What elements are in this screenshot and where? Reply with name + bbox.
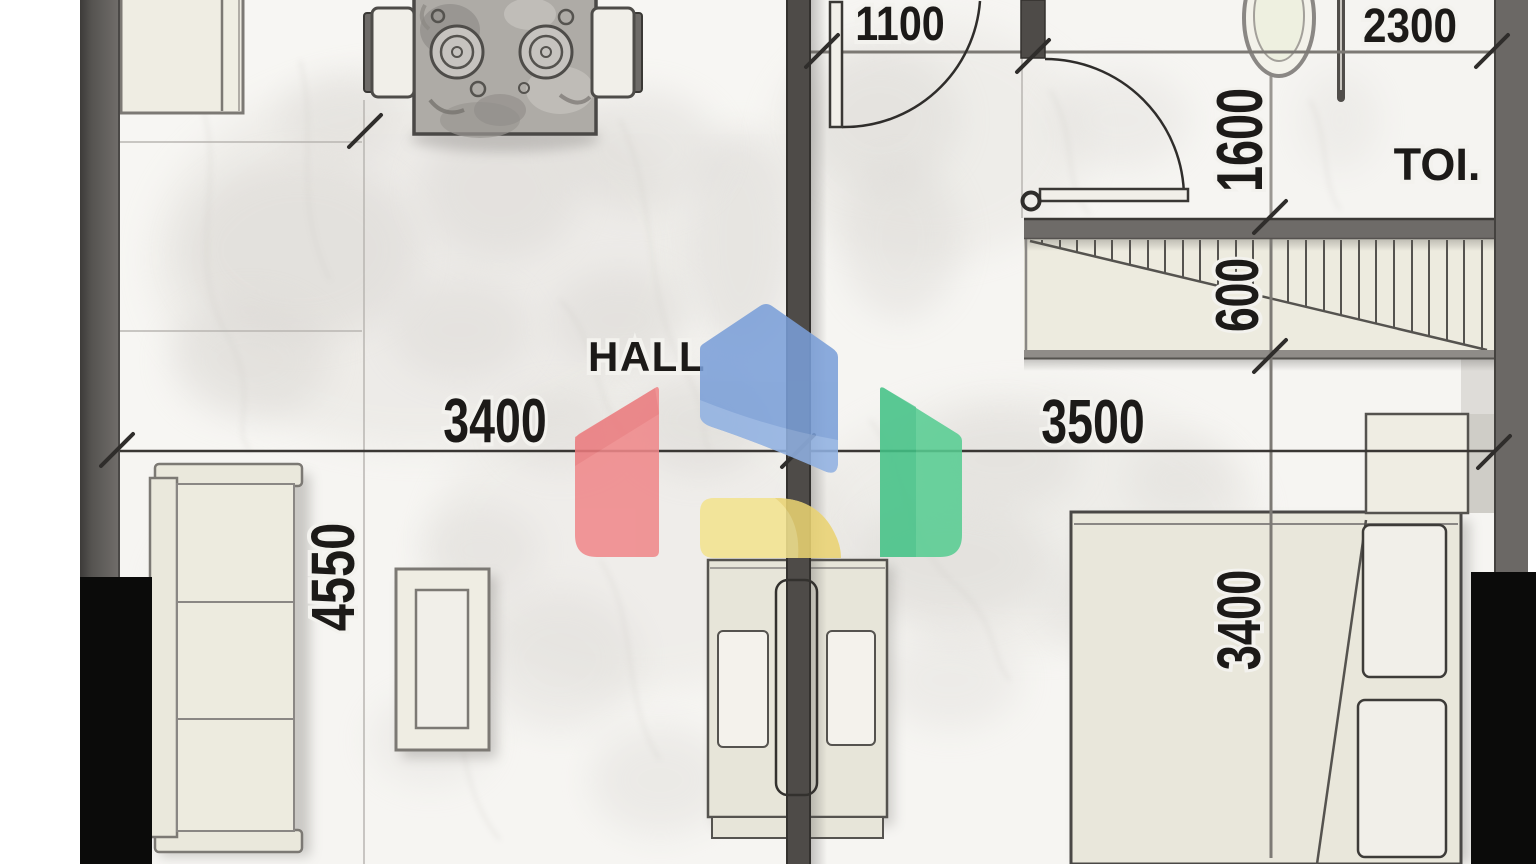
svg-text:3400: 3400	[1205, 570, 1273, 670]
svg-text:1100: 1100	[855, 0, 945, 51]
svg-text:2300: 2300	[1363, 0, 1457, 53]
svg-text:3400: 3400	[443, 385, 546, 455]
svg-text:1600: 1600	[1205, 88, 1277, 192]
svg-text:3500: 3500	[1041, 386, 1144, 456]
svg-text:4550: 4550	[299, 523, 367, 632]
svg-text:TOI.: TOI.	[1394, 139, 1481, 190]
svg-text:HALL: HALL	[588, 333, 706, 380]
svg-text:600: 600	[1205, 258, 1272, 332]
